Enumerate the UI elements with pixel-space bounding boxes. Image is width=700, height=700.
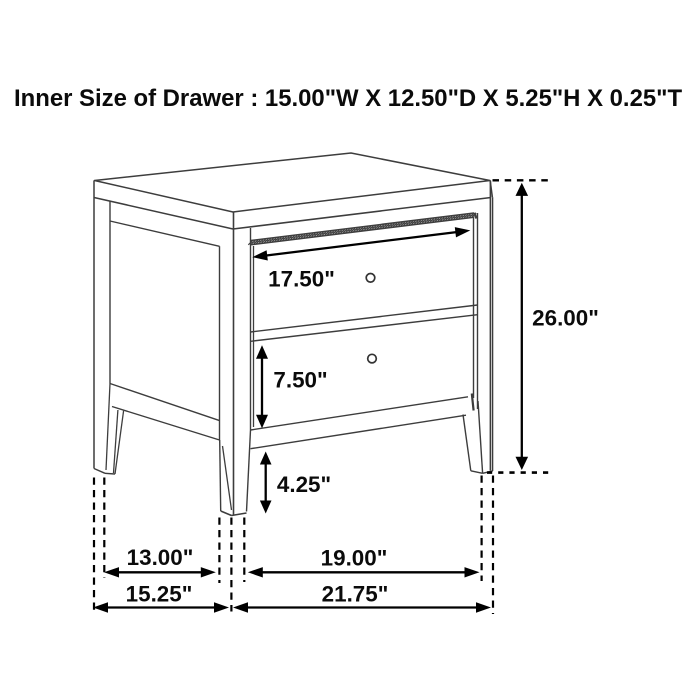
svg-text:19.00": 19.00": [321, 546, 388, 571]
svg-text:15.25": 15.25": [126, 582, 193, 607]
svg-text:26.00": 26.00": [532, 306, 599, 331]
svg-text:7.50": 7.50": [273, 368, 327, 393]
svg-text:17.50": 17.50": [268, 267, 335, 292]
svg-text:Inner Size of Drawer : 15.00"W: Inner Size of Drawer : 15.00"W X 12.50"D…: [14, 85, 682, 112]
svg-text:4.25": 4.25": [277, 472, 331, 497]
svg-text:21.75": 21.75": [322, 582, 389, 607]
svg-text:13.00": 13.00": [127, 545, 194, 570]
